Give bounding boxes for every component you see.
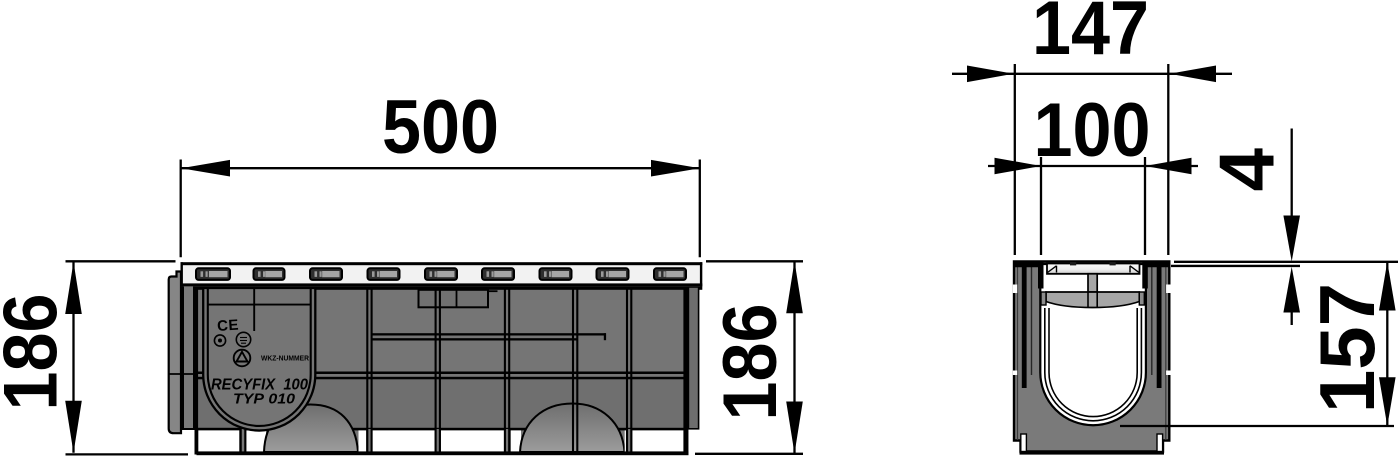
svg-text:500: 500 — [382, 85, 499, 170]
svg-text:100: 100 — [1034, 88, 1151, 173]
svg-text:147: 147 — [1032, 0, 1149, 71]
svg-text:186: 186 — [708, 304, 793, 421]
svg-text:TYP 010: TYP 010 — [233, 391, 296, 408]
svg-text:157: 157 — [1303, 283, 1391, 413]
svg-text:WKZ-NUMMER: WKZ-NUMMER — [261, 354, 309, 363]
svg-text:CE: CE — [217, 317, 240, 335]
svg-text:4: 4 — [1203, 148, 1291, 191]
svg-text:186: 186 — [0, 294, 74, 411]
